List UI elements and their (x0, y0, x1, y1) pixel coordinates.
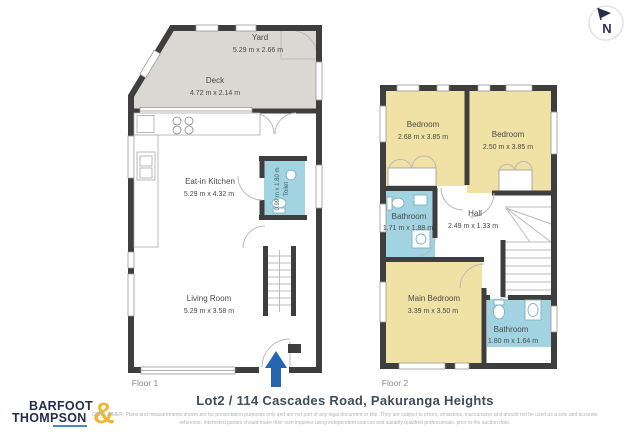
floor1-caption: Floor 1 (115, 378, 175, 388)
floor2-stairs (505, 207, 551, 290)
kitchen-label: Eat-in Kitchen (185, 177, 235, 186)
room-kitchen-living (131, 110, 318, 370)
living-label: Living Room (187, 294, 232, 303)
bathroom2-label: Bathroom (494, 325, 529, 334)
toilet-dims: 0.99 m x 1.80 m (275, 167, 281, 210)
yard-dims: 5.29 m x 2.66 m (233, 47, 283, 54)
bedroom2-dims: 2.50 m x 3.85 m (483, 144, 533, 151)
property-address: Lot2 / 114 Cascades Road, Pakuranga Heig… (60, 393, 630, 408)
entry-wall-stub (288, 344, 301, 353)
yard-label: Yard (252, 33, 268, 42)
bathroom2-dims: 1.80 m x 1.64 m (488, 338, 538, 345)
main-bedroom-label: Main Bedroom (408, 294, 460, 303)
bedroom1-dims: 2.68 m x 3.85 m (398, 134, 448, 141)
bathroom1-label: Bathroom (392, 212, 427, 221)
floorplan-page: Yard 5.29 m x 2.66 m Deck 4.72 m x 2.14 … (0, 0, 639, 438)
logo-underline (53, 425, 87, 427)
hall-dims: 2.49 m x 1.33 m (448, 223, 498, 230)
deck-label: Deck (206, 76, 225, 85)
north-compass-icon: N (589, 6, 623, 40)
floor1-plan: Yard 5.29 m x 2.66 m Deck 4.72 m x 2.14 … (128, 25, 322, 387)
disclaimer-text: DISCLAIMER: Plans and measurements shown… (85, 411, 605, 427)
toilet-label: Toilet (284, 182, 290, 196)
floor-plan-graphic: Yard 5.29 m x 2.66 m Deck 4.72 m x 2.14 … (0, 0, 639, 438)
living-dims: 5.29 m x 3.58 m (184, 308, 234, 315)
floor2-caption: Floor 2 (365, 378, 425, 388)
bedroom1-label: Bedroom (407, 120, 440, 129)
room-yard-deck (131, 29, 318, 110)
compass-north-label: N (602, 21, 611, 36)
deck-dims: 4.72 m x 2.14 m (190, 90, 240, 97)
bedroom2-label: Bedroom (492, 130, 525, 139)
hall-label: Hall (468, 209, 482, 218)
main-bedroom-dims: 3.39 m x 3.50 m (408, 308, 458, 315)
kitchen-dims: 5.29 m x 4.32 m (184, 191, 234, 198)
bathroom1-dims: 1.71 m x 1.88 m (383, 225, 433, 232)
floor2-plan: Bedroom 2.68 m x 3.85 m Bedroom 2.50 m x… (380, 85, 557, 369)
